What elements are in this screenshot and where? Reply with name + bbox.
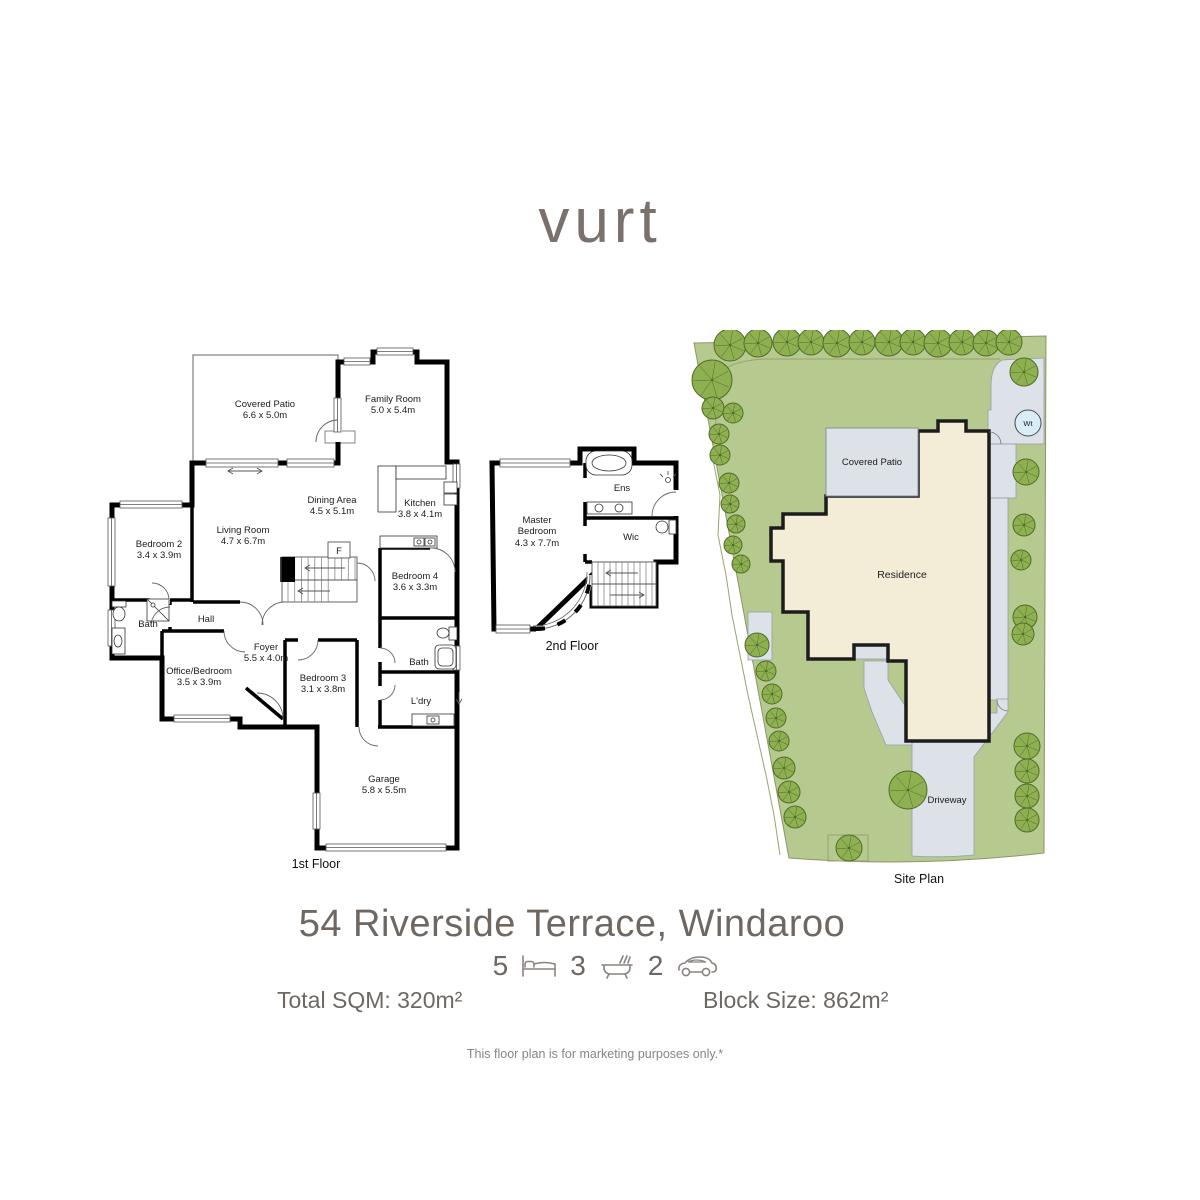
label-bedroom3: Bedroom 3 [300,673,346,684]
beds-count: 5 [493,950,509,982]
site-plan: Wt Covered Patio Residence Driveway Site… [688,330,1053,885]
label-bedroom2: Bedroom 2 [136,539,182,550]
label-master-2: Bedroom [518,526,557,537]
svg-text:3.4 x 3.9m: 3.4 x 3.9m [137,550,181,561]
svg-text:6.6 x 5.0m: 6.6 x 5.0m [243,410,287,421]
first-floor-plan: Covered Patio 6.6 x 5.0m Family Room 5.0… [105,345,465,870]
label-bath-right: Bath [409,657,429,668]
label-family-room: Family Room [365,394,421,405]
label-residence: Residence [877,569,927,581]
svg-text:5.0 x 5.4m: 5.0 x 5.4m [371,405,415,416]
vurt-logo: vurt [0,186,1200,257]
label-hall: Hall [198,614,214,625]
baths-count: 3 [570,950,586,982]
block-size: Block Size: 862m² [703,987,888,1014]
label-garage: Garage [368,774,400,785]
total-sqm: Total SQM: 320m² [277,987,462,1014]
label-living: Living Room [217,525,270,536]
svg-text:3.8 x 4.1m: 3.8 x 4.1m [398,509,442,520]
svg-text:5.5 x 4.0m: 5.5 x 4.0m [244,653,288,664]
svg-text:5.8 x 5.5m: 5.8 x 5.5m [362,785,406,796]
label-dining: Dining Area [307,495,357,506]
label-bath-left: Bath [138,619,158,630]
svg-text:4.7 x 6.7m: 4.7 x 6.7m [221,536,265,547]
label-laundry: L'dry [411,696,432,707]
label-covered-patio: Covered Patio [235,399,295,410]
svg-text:3.1 x 3.8m: 3.1 x 3.8m [301,684,345,695]
label-site-covered-patio: Covered Patio [842,457,902,468]
bath-icon [598,952,636,980]
label-driveway: Driveway [927,795,966,806]
svg-text:3.5 x 3.9m: 3.5 x 3.9m [177,677,221,688]
label-office: Office/Bedroom [166,666,232,677]
bed-icon [520,953,558,979]
svg-text:4.5 x 5.1m: 4.5 x 5.1m [310,506,354,517]
car-icon [675,953,719,979]
label-foyer: Foyer [254,642,278,653]
caption-1st-floor: 1st Floor [292,857,341,870]
stats-row: 5 3 2 [6,950,1200,982]
label-wardrobe: Wic [623,532,639,543]
second-floor-plan: Master Bedroom 4.3 x 7.7m Ens Wic 2nd Fl… [483,440,683,655]
floorplan-page: vurt [0,0,1200,1200]
svg-text:3.6 x 3.3m: 3.6 x 3.3m [393,582,437,593]
svg-text:4.3 x 7.7m: 4.3 x 7.7m [515,538,559,549]
label-master-1: Master [522,515,551,526]
label-bedroom4: Bedroom 4 [392,571,438,582]
property-address: 54 Riverside Terrace, Windaroo [0,903,1172,946]
water-tank: Wt [1015,410,1041,436]
caption-site-plan: Site Plan [894,872,944,885]
label-water-tank: Wt [1023,419,1033,428]
sliding-door-arrows [228,468,262,474]
stairs [592,562,656,606]
label-fridge: F [336,546,342,557]
cars-count: 2 [648,950,664,982]
disclaimer: This floor plan is for marketing purpose… [0,1047,1195,1061]
stairs [282,557,357,602]
label-kitchen: Kitchen [404,498,436,509]
bath-right-fixtures [435,627,457,669]
label-ensuite: Ens [614,483,631,494]
caption-2nd-floor: 2nd Floor [546,639,599,653]
